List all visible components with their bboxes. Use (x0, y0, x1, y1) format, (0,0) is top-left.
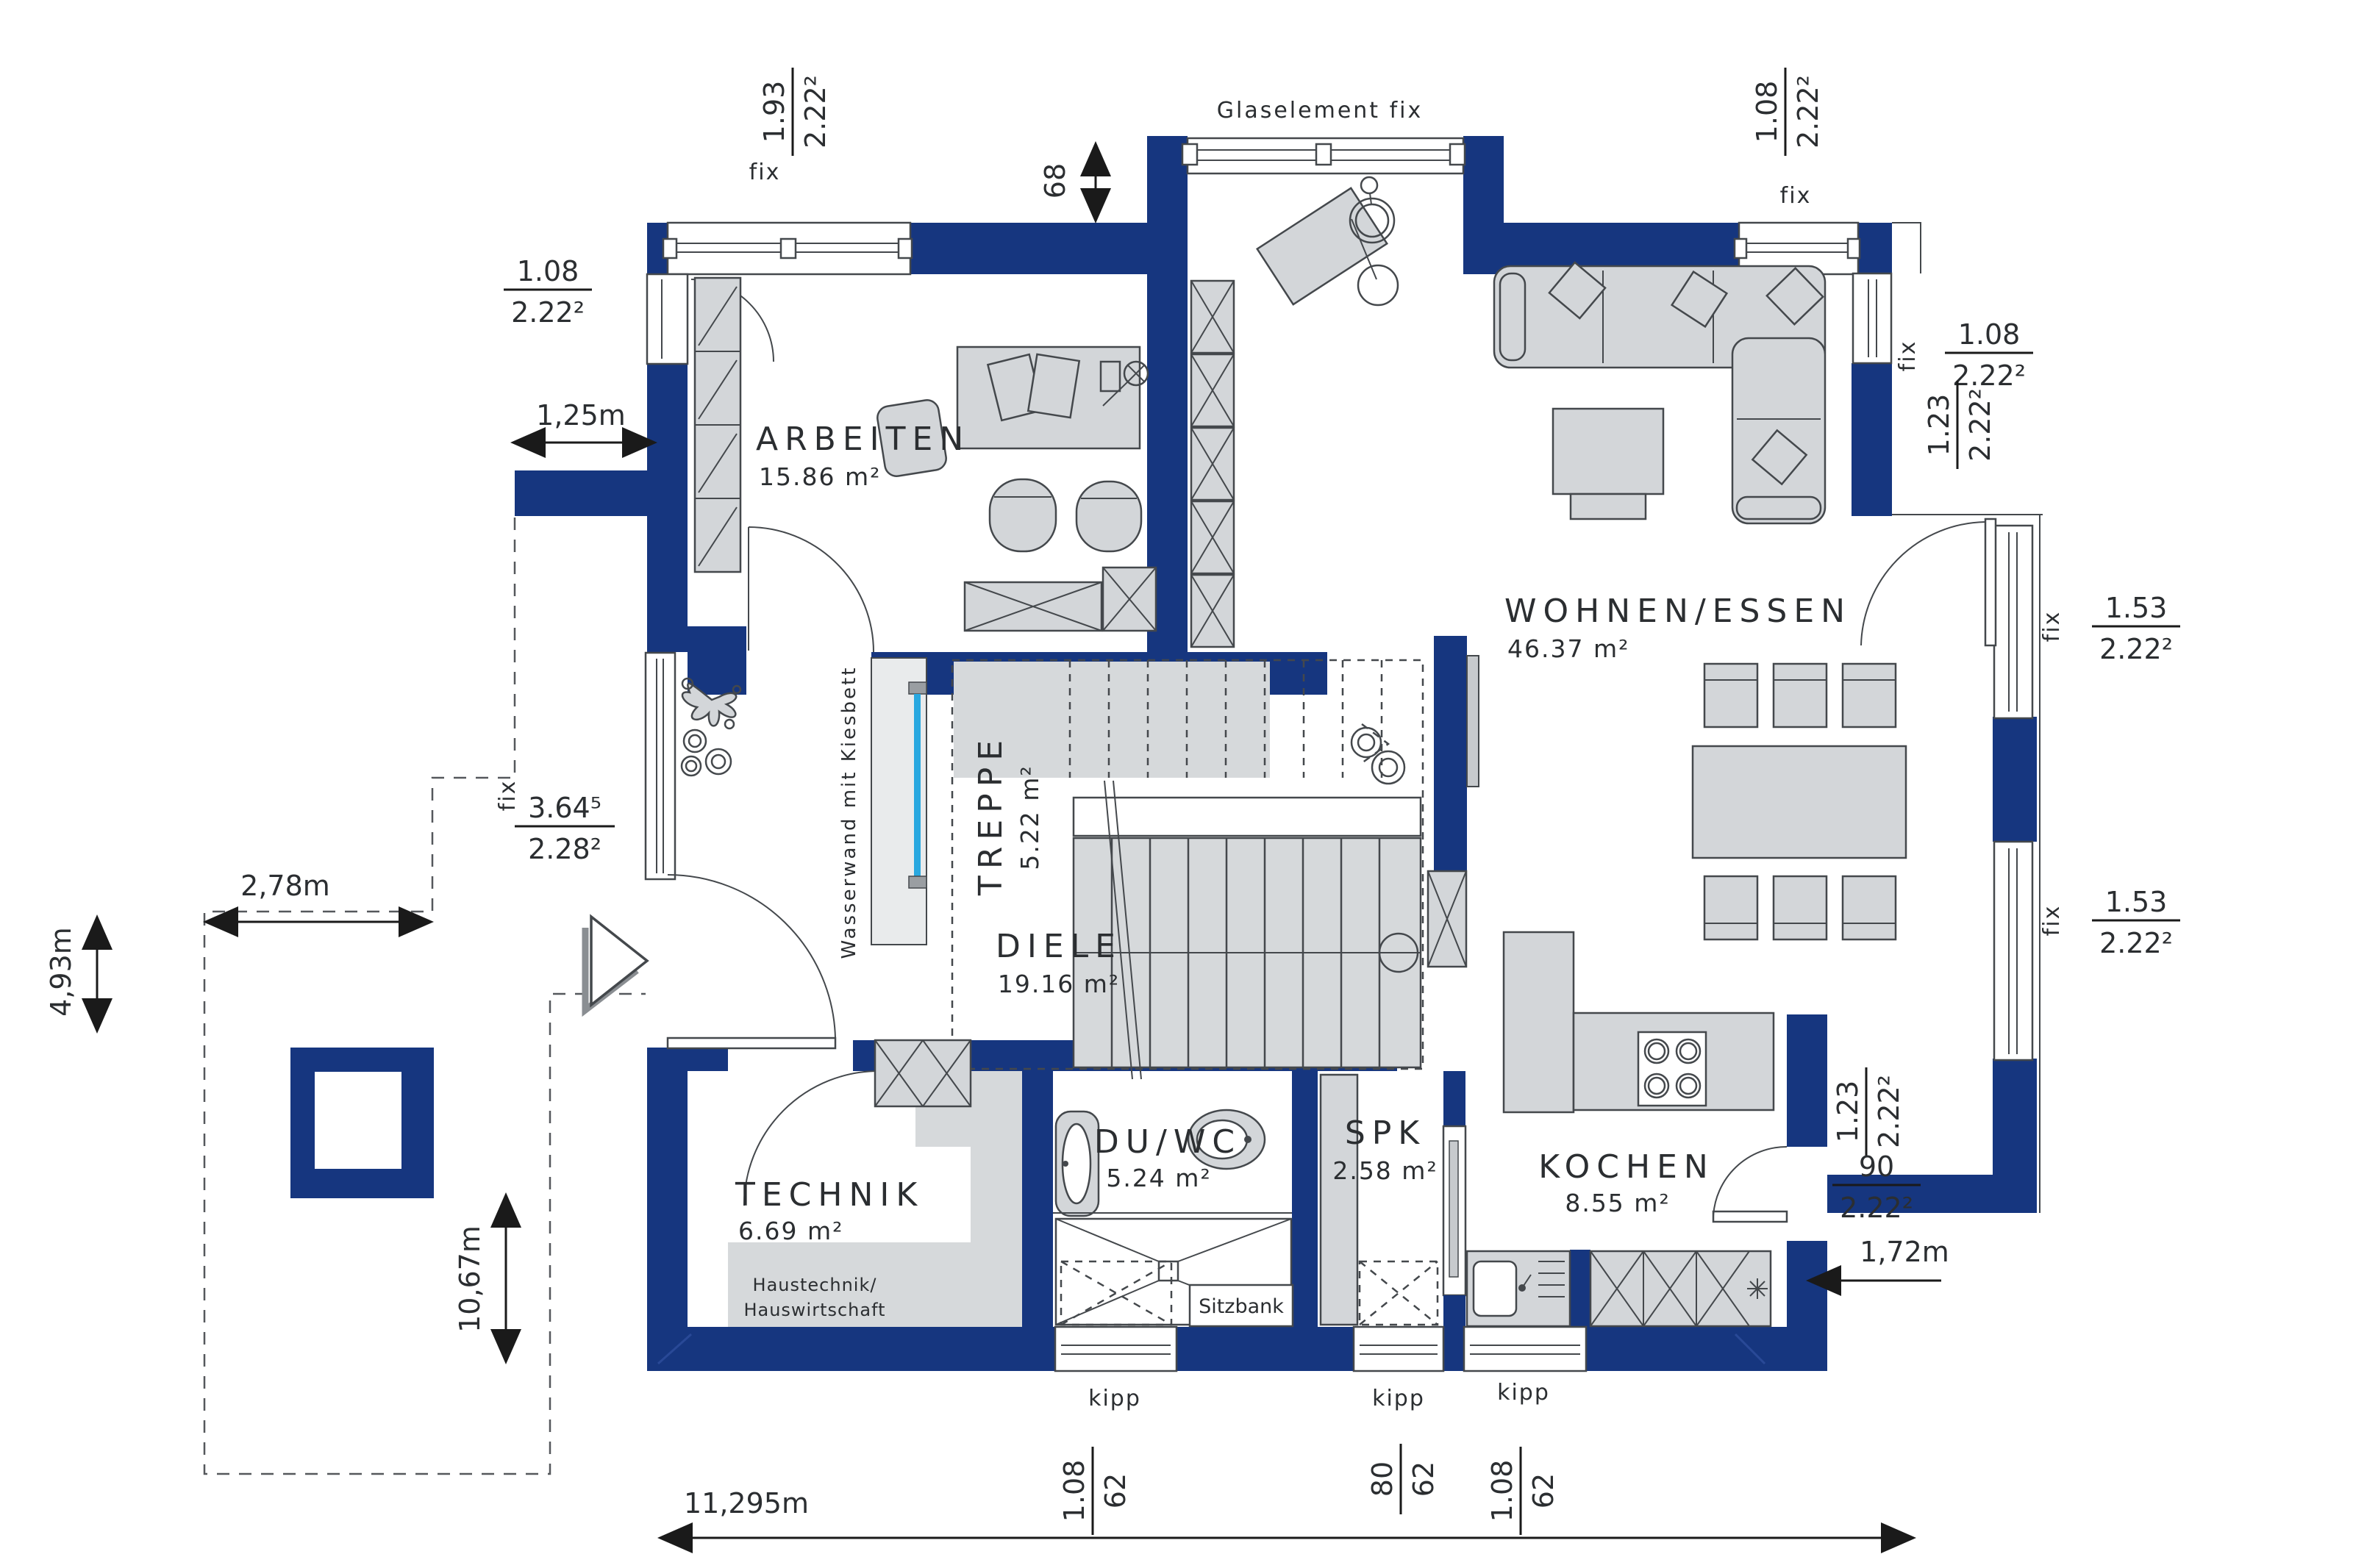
svg-text:1.08: 1.08 (517, 255, 579, 287)
dining-chair (1774, 876, 1827, 939)
window-bay-lower (1994, 842, 2032, 1060)
svg-text:4,93m: 4,93m (45, 927, 77, 1017)
terrace-door-upper (1861, 519, 1996, 645)
svg-text:90: 90 (1859, 1150, 1894, 1183)
sink-counter (1467, 1251, 1570, 1326)
svg-text:80: 80 (1366, 1461, 1399, 1497)
svg-text:1.53: 1.53 (2105, 592, 2168, 624)
desk (957, 347, 1148, 448)
svg-text:2.22²: 2.22² (1964, 388, 1996, 462)
svg-text:62: 62 (1527, 1473, 1560, 1508)
svg-text:1.08: 1.08 (1058, 1460, 1090, 1522)
wasserwand-label: Wasserwand mit Kiesbett (838, 666, 860, 959)
cabinet-near-stairs (1428, 871, 1466, 967)
svg-text:1,72m: 1,72m (1860, 1236, 1949, 1268)
dim-172: 1,72m (1810, 1236, 1949, 1281)
kipp-labels: kipp kipp kipp (1088, 1380, 1550, 1411)
window-glaselement (1182, 138, 1465, 173)
fix-label-bay-lower: fix (2039, 905, 2065, 937)
room-label-duwc: DU/WC (1094, 1123, 1241, 1161)
technik-wardrobe (875, 1040, 971, 1106)
wardrobe-left (695, 278, 740, 572)
dining-chair (1774, 664, 1827, 727)
svg-text:2.22²: 2.22² (1873, 1075, 1905, 1148)
kitchen-island (1504, 932, 1774, 1112)
room-area-wohnen: 46.37 m² (1507, 634, 1629, 663)
window-entry-fix (646, 653, 675, 879)
fix-label-right-upper: fix (1895, 340, 1921, 372)
svg-text:2.22²: 2.22² (511, 296, 585, 329)
svg-text:62: 62 (1407, 1461, 1440, 1497)
sitzbank-label: Sitzbank (1199, 1295, 1284, 1318)
dim-win-193: 1.93 2.22² (758, 68, 832, 156)
dining-chair (1704, 664, 1757, 727)
dim-win-108-top: 1.08 2.22² (1751, 68, 1824, 156)
room-area-duwc: 5.24 m² (1106, 1164, 1211, 1192)
kochen-terrace-door (1713, 1147, 1787, 1222)
spk-fixtures (1321, 1075, 1357, 1325)
room-area-treppe: 5.22 m² (1015, 765, 1044, 870)
fix-label-top-right: fix (1780, 183, 1812, 209)
dim-win-108-62-kochen: 1.08 62 (1486, 1447, 1560, 1535)
window-spk (1354, 1327, 1443, 1371)
dining-chair (1704, 876, 1757, 939)
window-kochen (1464, 1327, 1586, 1371)
coffee-table (1553, 409, 1663, 519)
dim-win-80-62-spk: 80 62 (1366, 1444, 1440, 1514)
dim-68: 68 (1039, 146, 1096, 219)
dim-entry-364: 3.64⁵ 2.28² (515, 792, 615, 865)
room-label-spk: SPK (1345, 1114, 1426, 1152)
sideboard (965, 568, 1156, 631)
room-label-treppe: TREPPE (972, 734, 1010, 896)
svg-text:1.53: 1.53 (2105, 886, 2168, 918)
svg-text:62: 62 (1099, 1473, 1132, 1508)
drafting-easel (1257, 177, 1398, 305)
window-duwc (1055, 1327, 1176, 1371)
staircase (871, 658, 1423, 1079)
room-area-spk: 2.58 m² (1332, 1156, 1438, 1185)
svg-text:2.22²: 2.22² (1840, 1192, 1913, 1224)
room-label-technik: TECHNIK (735, 1176, 924, 1214)
svg-text:2.22²: 2.22² (2099, 927, 2173, 959)
svg-text:11,295m: 11,295m (684, 1487, 809, 1519)
svg-text:2.22²: 2.22² (2099, 633, 2173, 665)
room-area-technik: 6.69 m² (738, 1217, 843, 1245)
room-label-wohnen: WOHNEN/ESSEN (1504, 593, 1852, 630)
terrace-dashed-outline (204, 518, 646, 1474)
base-cabinets (1590, 1251, 1771, 1326)
technik-note-2: Hauswirtschaft (743, 1300, 885, 1320)
svg-text:1.08: 1.08 (1958, 318, 2021, 351)
dining-chair (1843, 876, 1896, 939)
svg-text:68: 68 (1039, 163, 1071, 198)
entrance-marker (585, 917, 647, 1010)
entry-door (668, 875, 835, 1048)
room-label-arbeiten: ARBEITEN (756, 420, 970, 458)
tv-panel (1467, 656, 1479, 787)
fix-label-entry: fix (495, 780, 521, 812)
svg-text:2.22²: 2.22² (1952, 359, 2026, 392)
dim-125: 1,25m (515, 399, 653, 443)
svg-text:1,25m: 1,25m (536, 399, 626, 432)
svg-text:1.08: 1.08 (1751, 81, 1783, 143)
dim-278: 2,78m (207, 870, 429, 922)
tub-chair-1 (990, 479, 1056, 551)
kipp-label-1: kipp (1088, 1386, 1141, 1411)
svg-text:1.08: 1.08 (1486, 1460, 1518, 1522)
fix-label-top-left: fix (749, 160, 781, 185)
washbasin (1056, 1111, 1099, 1216)
svg-text:3.64⁵: 3.64⁵ (528, 792, 601, 824)
dim-win-108-62-duwc: 1.08 62 (1058, 1447, 1132, 1535)
dim-493: 4,93m (45, 919, 97, 1029)
dining-set (1693, 664, 1906, 939)
floor-plan-drawing: Sitzbank ARBEITEN 15.8 (0, 0, 2353, 1568)
dining-chair (1843, 664, 1896, 727)
svg-text:1.93: 1.93 (758, 81, 790, 143)
svg-text:1.23: 1.23 (1923, 394, 1955, 457)
dim-11295: 11,295m (662, 1487, 1912, 1538)
kipp-label-3: kipp (1497, 1380, 1550, 1406)
tub-chair-2 (1076, 482, 1141, 551)
svg-text:2,78m: 2,78m (240, 870, 330, 902)
dim-door-123-kitchen: 1.23 2.22² (1832, 1067, 1905, 1156)
tall-cabinets-east (1191, 281, 1234, 647)
dim-win-153-lower: 1.53 2.22² (2092, 886, 2180, 959)
floor-plan-page: Sitzbank ARBEITEN 15.8 (0, 0, 2353, 1568)
room-area-diele: 19.16 m² (998, 970, 1120, 998)
dim-win-108-left: 1.08 2.22² (504, 255, 592, 329)
window-top-left (663, 223, 912, 274)
technik-note-1: Haustechnik/ (753, 1275, 877, 1295)
svg-text:2.22²: 2.22² (799, 75, 832, 148)
dim-door-123-upper: 1.23 2.22² (1923, 381, 1996, 469)
room-label-diele: DIELE (996, 928, 1122, 965)
fix-label-bay-upper: fix (2039, 611, 2065, 642)
stairs-lower-flight (1074, 838, 1421, 1067)
room-area-arbeiten: 15.86 m² (759, 462, 881, 491)
dim-win-153-upper: 1.53 2.22² (2092, 592, 2180, 665)
window-bay-upper (1994, 526, 2032, 718)
svg-text:2.22²: 2.22² (1792, 75, 1824, 148)
kipp-label-2: kipp (1372, 1386, 1425, 1411)
room-area-kochen: 8.55 m² (1565, 1189, 1670, 1217)
window-right-upper-fix (1853, 273, 1891, 363)
sitzbank: Sitzbank (1190, 1285, 1293, 1326)
appliance-asterisk (1747, 1278, 1768, 1299)
arbeiten-door (749, 527, 874, 652)
svg-text:2.28²: 2.28² (528, 833, 601, 865)
svg-text:1.23: 1.23 (1832, 1081, 1864, 1143)
glaselement-label: Glaselement fix (1217, 98, 1424, 123)
svg-text:10,67m: 10,67m (454, 1225, 486, 1333)
exterior-chimney (290, 1048, 434, 1198)
room-label-kochen: KOCHEN (1538, 1148, 1715, 1186)
dim-1067: 10,67m (454, 1197, 506, 1360)
